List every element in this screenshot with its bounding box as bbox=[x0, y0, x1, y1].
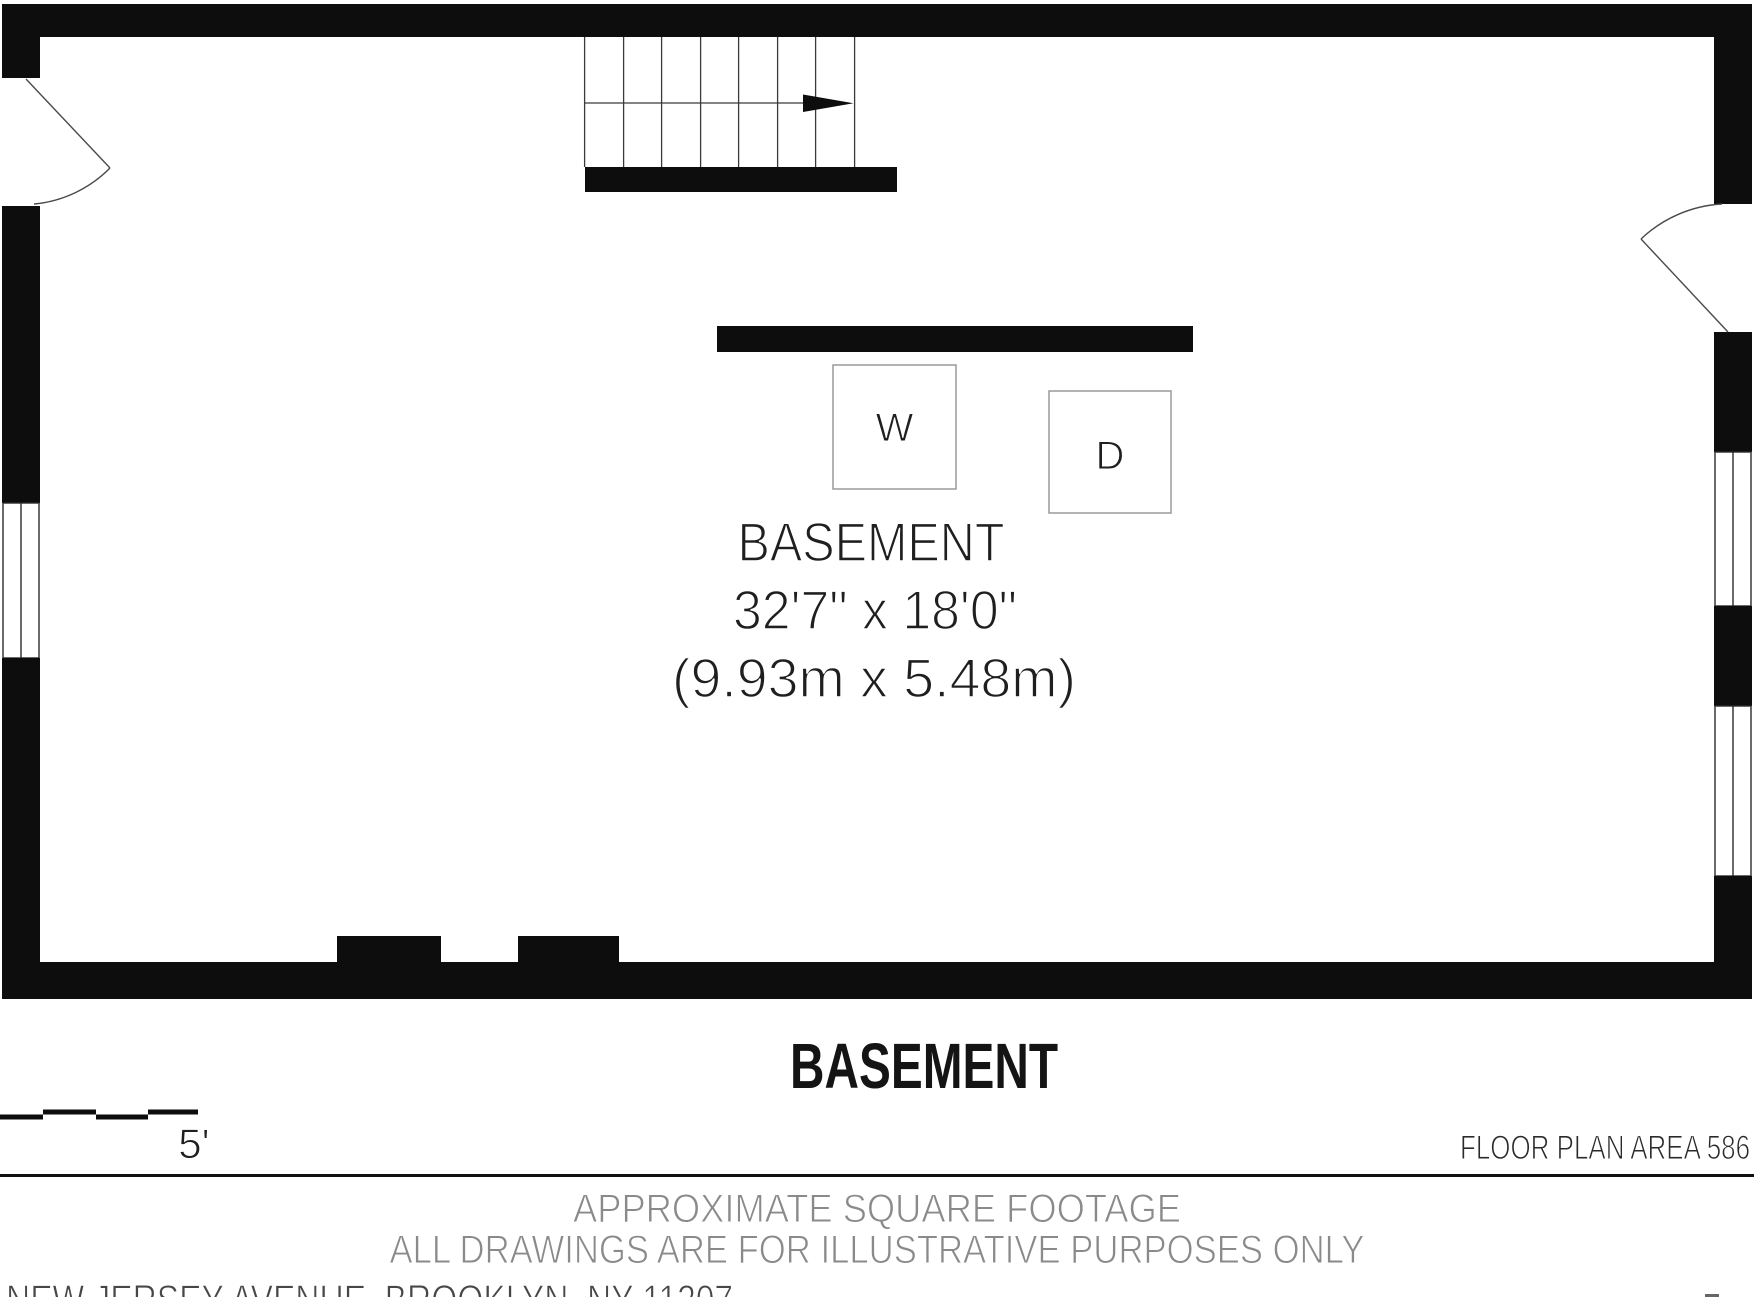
svg-text:32'7" x 18'0": 32'7" x 18'0" bbox=[733, 579, 1017, 641]
svg-text:BASEMENT: BASEMENT bbox=[790, 1030, 1058, 1102]
svg-text:APPROXIMATE SQUARE FOOTAGE: APPROXIMATE SQUARE FOOTAGE bbox=[573, 1187, 1181, 1231]
svg-text:5': 5' bbox=[178, 1120, 209, 1167]
svg-text:FLOOR PLAN AREA 586: FLOOR PLAN AREA 586 bbox=[1460, 1129, 1750, 1167]
svg-text:ALL DRAWINGS ARE FOR ILLUSTRAT: ALL DRAWINGS ARE FOR ILLUSTRATIVE PURPOS… bbox=[390, 1228, 1365, 1272]
svg-text:D: D bbox=[1096, 434, 1125, 478]
svg-text:BASEMENT: BASEMENT bbox=[738, 511, 1005, 573]
svg-text:(9.93m x 5.48m): (9.93m x 5.48m) bbox=[672, 647, 1076, 709]
svg-text:NEW JERSEY AVENUE, BROOKLYN, N: NEW JERSEY AVENUE, BROOKLYN, NY 11207 bbox=[6, 1276, 733, 1297]
svg-text:W: W bbox=[876, 406, 914, 450]
